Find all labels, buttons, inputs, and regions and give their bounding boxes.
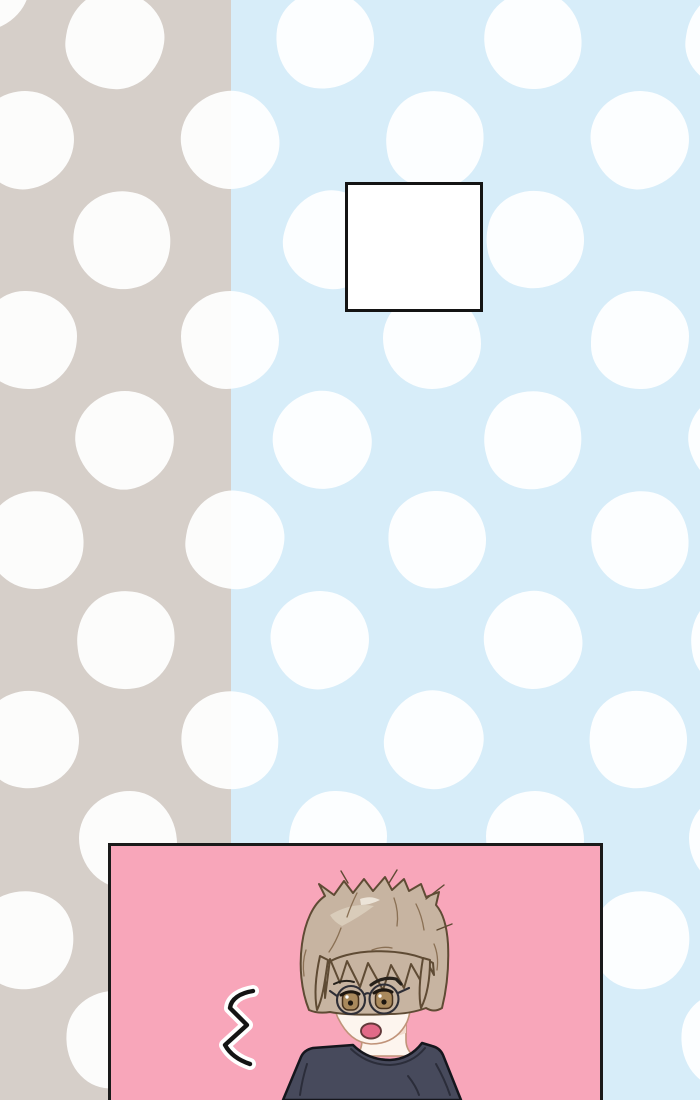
polka-dot (585, 85, 696, 196)
webtoon-page (0, 0, 700, 1100)
polka-dot (677, 379, 700, 500)
polka-dot (380, 85, 491, 196)
polka-dot (382, 485, 493, 596)
polka-dot (0, 0, 41, 43)
polka-dot (474, 179, 595, 300)
mouth-open (361, 1024, 381, 1039)
polka-dot (591, 291, 689, 389)
polka-dot (675, 985, 700, 1096)
polka-dot (0, 679, 91, 800)
polka-dot (0, 879, 86, 1000)
polka-dot (689, 791, 700, 889)
polka-dot (60, 0, 171, 95)
polka-dot (181, 291, 279, 389)
polka-dot (585, 485, 696, 596)
polka-dot (64, 379, 185, 500)
polka-dot (478, 0, 589, 95)
polka-dot (0, 291, 77, 389)
polka-dot (472, 379, 593, 500)
polka-dot (577, 679, 698, 800)
polka-dot (478, 585, 589, 696)
polka-dot (71, 585, 182, 696)
shock-squiggle-icon (225, 991, 253, 1064)
polka-dot (373, 679, 494, 800)
polka-dot (169, 679, 290, 800)
polka-dot (175, 85, 286, 196)
polka-dot (261, 379, 382, 500)
character-illustration (111, 846, 600, 1100)
caption-box (345, 182, 483, 312)
polka-dot (61, 179, 182, 300)
stray-strand (389, 870, 397, 883)
polka-dot (680, 0, 700, 95)
character-boy (283, 870, 461, 1100)
comic-panel (108, 843, 603, 1100)
polka-dot (270, 0, 381, 95)
polka-dot (685, 585, 700, 696)
polka-dot (180, 485, 291, 596)
polka-dot (0, 485, 90, 596)
polka-dot (0, 85, 80, 196)
polka-dot (265, 585, 376, 696)
